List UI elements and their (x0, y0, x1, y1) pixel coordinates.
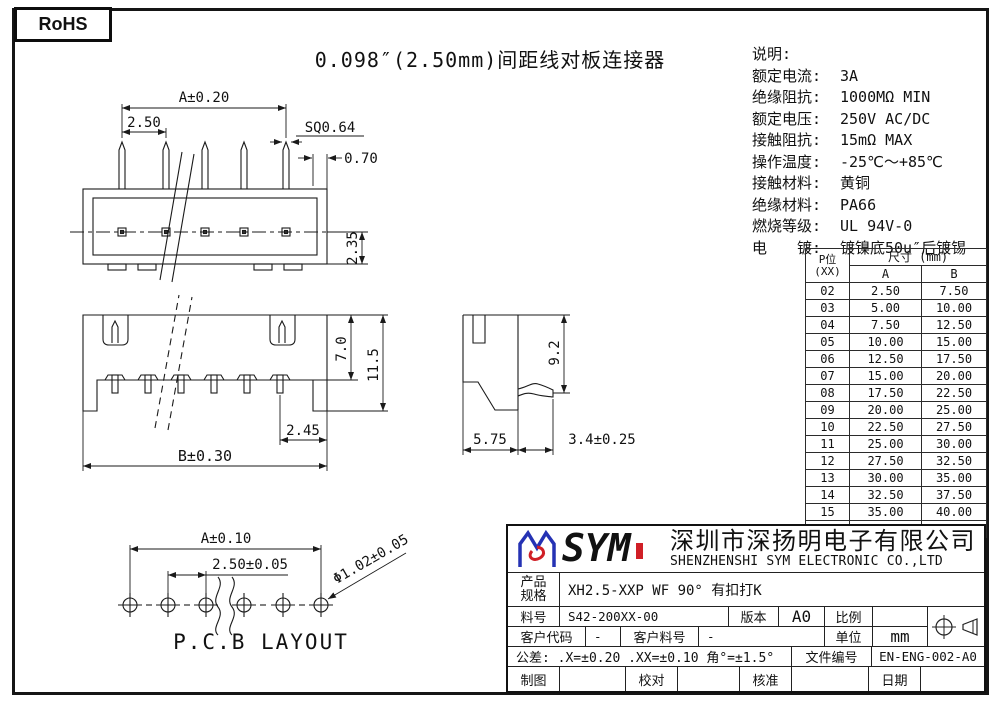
col-header-size: 尺寸 (mm) (850, 249, 987, 266)
table-row: 0817.5022.50 (806, 385, 987, 402)
datasheet-page: RoHS 0.098″(2.50mm)间距线对板连接器 说明: 额定电流:3A … (0, 0, 1000, 704)
front-view-body (83, 295, 327, 430)
hole (232, 593, 256, 617)
dim-label-offset: 0.70 (344, 151, 378, 167)
spec-item: 绝缘材料:PA66 (752, 195, 988, 217)
side-view-body (463, 315, 553, 410)
table-row: 0612.5017.50 (806, 351, 987, 368)
break-line (172, 154, 194, 282)
dim-label-pin: 3.4±0.25 (568, 432, 635, 448)
break-squiggle (216, 577, 221, 635)
hole (309, 593, 333, 617)
table-row: 1125.0030.00 (806, 436, 987, 453)
spec-item: 接触阻抗:15mΩ MAX (752, 130, 988, 152)
pin-cavity (103, 315, 128, 345)
top-view-body (70, 142, 343, 282)
customer-part-label: 客户料号 (621, 627, 699, 646)
table-row: 0715.0020.00 (806, 368, 987, 385)
dim-label-a: A±0.10 (201, 531, 252, 547)
scale-label: 比例 (825, 607, 873, 626)
pin-slot (473, 315, 485, 343)
rohs-badge: RoHS (14, 7, 112, 42)
product-spec-value: XH2.5-XXP WF 90° 有扣打K (560, 573, 984, 606)
break-line (168, 297, 192, 430)
dim-label-sq: SQ0.64 (305, 120, 356, 136)
hole (271, 593, 295, 617)
spec-item: 额定电流:3A (752, 66, 988, 88)
bent-pin (518, 384, 553, 397)
break-squiggle (230, 577, 235, 635)
pin (112, 321, 118, 343)
company-name-en: SHENZHENSHI SYM ELECTRONIC CO.,LTD (670, 555, 976, 569)
spec-item: 接触材料:黄铜 (752, 173, 988, 195)
scale-value (873, 607, 927, 626)
date-label: 日期 (869, 667, 921, 691)
unit-value: mm (873, 627, 927, 646)
pcb-holes (118, 577, 333, 635)
doc-no-value: EN-ENG-002-A0 (872, 647, 984, 666)
pin (202, 142, 208, 189)
rohs-label: RoHS (39, 14, 88, 35)
part-no-row: 料号 S42-200XX-00 版本 A0 比例 (508, 607, 927, 627)
dim-label-height: 2.35 (345, 231, 361, 265)
logo-text: SYM (562, 528, 632, 570)
pin (163, 142, 169, 189)
dim-label-b: B±0.30 (178, 447, 232, 465)
spec-item: 绝缘阻抗:1000MΩ MIN (752, 87, 988, 109)
company-logo-mark-icon (514, 529, 560, 569)
company-logo-wordmark: SYM (560, 528, 660, 570)
col-header-a: A (850, 266, 922, 283)
customer-row: 客户代码 - 客户料号 - 单位 mm (508, 627, 927, 646)
dimension-table: P位 (XX) 尺寸 (mm) A B 022.507.50 035.0010.… (805, 248, 987, 538)
dim-label-leg: 2.45 (286, 423, 320, 439)
table-row: 1432.5037.50 (806, 487, 987, 504)
unit-label: 单位 (825, 627, 873, 646)
spec-list: 说明: 额定电流:3A 绝缘阻抗:1000MΩ MIN 额定电压:250V AC… (752, 44, 988, 259)
company-name-cn: 深圳市深扬明电子有限公司 (670, 529, 976, 554)
approve-value (792, 667, 869, 691)
customer-code-label: 客户代码 (508, 627, 586, 646)
spec-item: 燃烧等级:UL 94V-0 (752, 216, 988, 238)
table-row: 0510.0015.00 (806, 334, 987, 351)
tolerance-row: 公差: .X=±0.20 .XX=±0.10 角°=±1.5° 文件编号 EN-… (508, 647, 984, 667)
side-view-drawing: 9.2 5.75 3.4±0.25 (418, 283, 653, 488)
customer-part-value: - (699, 627, 825, 646)
spec-item: 额定电压:250V AC/DC (752, 109, 988, 131)
date-value (921, 667, 984, 691)
doc-no-label: 文件编号 (792, 647, 872, 666)
approve-label: 核准 (740, 667, 792, 691)
product-spec-row: 产品 规格 XH2.5-XXP WF 90° 有扣打K (508, 573, 984, 607)
table-row: 1535.0040.00 (806, 504, 987, 521)
dim-label-hole: Φ1.02±0.05 (330, 532, 411, 588)
version-label: 版本 (729, 607, 779, 626)
draw-label: 制图 (508, 667, 560, 691)
customer-code-value: - (586, 627, 621, 646)
hole (156, 593, 180, 617)
front-view-drawing: 7.0 11.5 2.45 B±0.30 (58, 283, 406, 488)
product-spec-label: 产品 规格 (508, 573, 560, 606)
spec-item: 操作温度:-25℃～+85℃ (752, 152, 988, 174)
table-row: 022.507.50 (806, 283, 987, 300)
col-header-b: B (922, 266, 987, 283)
signature-row: 制图 校对 核准 日期 (508, 667, 984, 691)
part-no-value: S42-200XX-00 (560, 607, 729, 626)
dim-label-inner-h: 7.0 (334, 336, 350, 361)
bottom-pins (105, 375, 290, 393)
table-row: 1330.0035.00 (806, 470, 987, 487)
table-row: 035.0010.00 (806, 300, 987, 317)
pin (283, 142, 289, 189)
title-block: SYM 深圳市深扬明电子有限公司 SHENZHENSHI SYM ELECTRO… (506, 524, 986, 693)
top-view-drawing: A±0.20 2.50 SQ0.64 0.70 2.35 (58, 84, 398, 284)
spec-heading: 说明: (752, 44, 988, 66)
dim-label-pitch: 2.50 (127, 115, 161, 131)
title-block-header: SYM 深圳市深扬明电子有限公司 SHENZHENSHI SYM ELECTRO… (508, 526, 984, 573)
company-names: 深圳市深扬明电子有限公司 SHENZHENSHI SYM ELECTRONIC … (670, 529, 976, 569)
pin-cavity (270, 315, 295, 345)
draw-value (560, 667, 626, 691)
projection-symbol-cell (927, 607, 984, 646)
table-row: 047.5012.50 (806, 317, 987, 334)
table-row: 1227.5032.50 (806, 453, 987, 470)
pin (279, 321, 285, 343)
hole (194, 593, 218, 617)
pcb-layout-caption: P.C.B LAYOUT (173, 630, 349, 654)
logo-red-bar (636, 543, 643, 559)
hole (118, 593, 142, 617)
pin (119, 142, 125, 189)
pin (241, 142, 247, 189)
dim-label-pitch: 2.50±0.05 (212, 557, 288, 573)
tolerance-text: 公差: .X=±0.20 .XX=±0.10 角°=±1.5° (508, 647, 792, 666)
page-title: 0.098″(2.50mm)间距线对板连接器 (250, 44, 730, 73)
version-value: A0 (779, 607, 825, 626)
col-header-positions: P位 (XX) (806, 249, 850, 283)
table-row: 1022.5027.50 (806, 419, 987, 436)
part-no-label: 料号 (508, 607, 560, 626)
table-row: 0920.0025.00 (806, 402, 987, 419)
check-label: 校对 (626, 667, 678, 691)
dim-label-w: 5.75 (473, 432, 507, 448)
projection-symbol-icon (929, 610, 983, 644)
dim-label-total-h: 11.5 (366, 348, 382, 382)
part-number-rows: 料号 S42-200XX-00 版本 A0 比例 客户代码 - 客户料号 - 单… (508, 607, 984, 647)
pcb-layout-drawing: A±0.10 2.50±0.05 Φ1.02±0.05 P.C.B LAYOUT (88, 523, 428, 673)
dim-label-a: A±0.20 (179, 90, 230, 106)
check-value (678, 667, 740, 691)
dim-label-h: 9.2 (547, 340, 563, 365)
